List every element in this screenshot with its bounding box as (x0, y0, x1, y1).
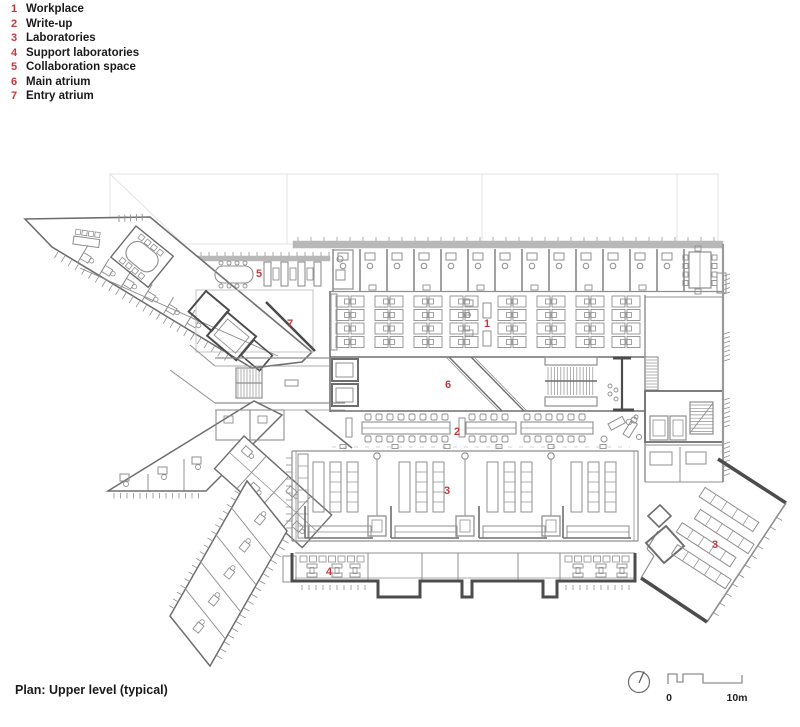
plan-label-2: 2 (454, 426, 460, 438)
plan-label-6: 6 (445, 379, 451, 391)
central-block (330, 244, 730, 482)
floor-plan-page: 1Workplace2Write-up3Laboratories4Support… (0, 0, 800, 727)
plan-number-labels: 57162343 (256, 268, 718, 578)
plan-label-4: 4 (326, 566, 333, 578)
plan-label-5: 5 (256, 268, 262, 280)
scale-zero-label: 0 (666, 692, 672, 704)
plan-label-7: 7 (287, 318, 293, 330)
scale-bar: 0 10m (666, 674, 747, 704)
laboratory-areas (286, 451, 786, 622)
scale-max-label: 10m (726, 692, 747, 704)
plan-label-3: 3 (444, 485, 450, 497)
north-arrow-icon (629, 672, 650, 693)
plan-label-3: 3 (712, 539, 718, 551)
building-walls (197, 237, 723, 261)
plan-caption: Plan: Upper level (typical) (15, 683, 168, 697)
plan-label-1: 1 (484, 318, 490, 330)
office-wings (25, 214, 352, 666)
floor-plan-drawing: 57162343 0 10m (0, 0, 800, 727)
